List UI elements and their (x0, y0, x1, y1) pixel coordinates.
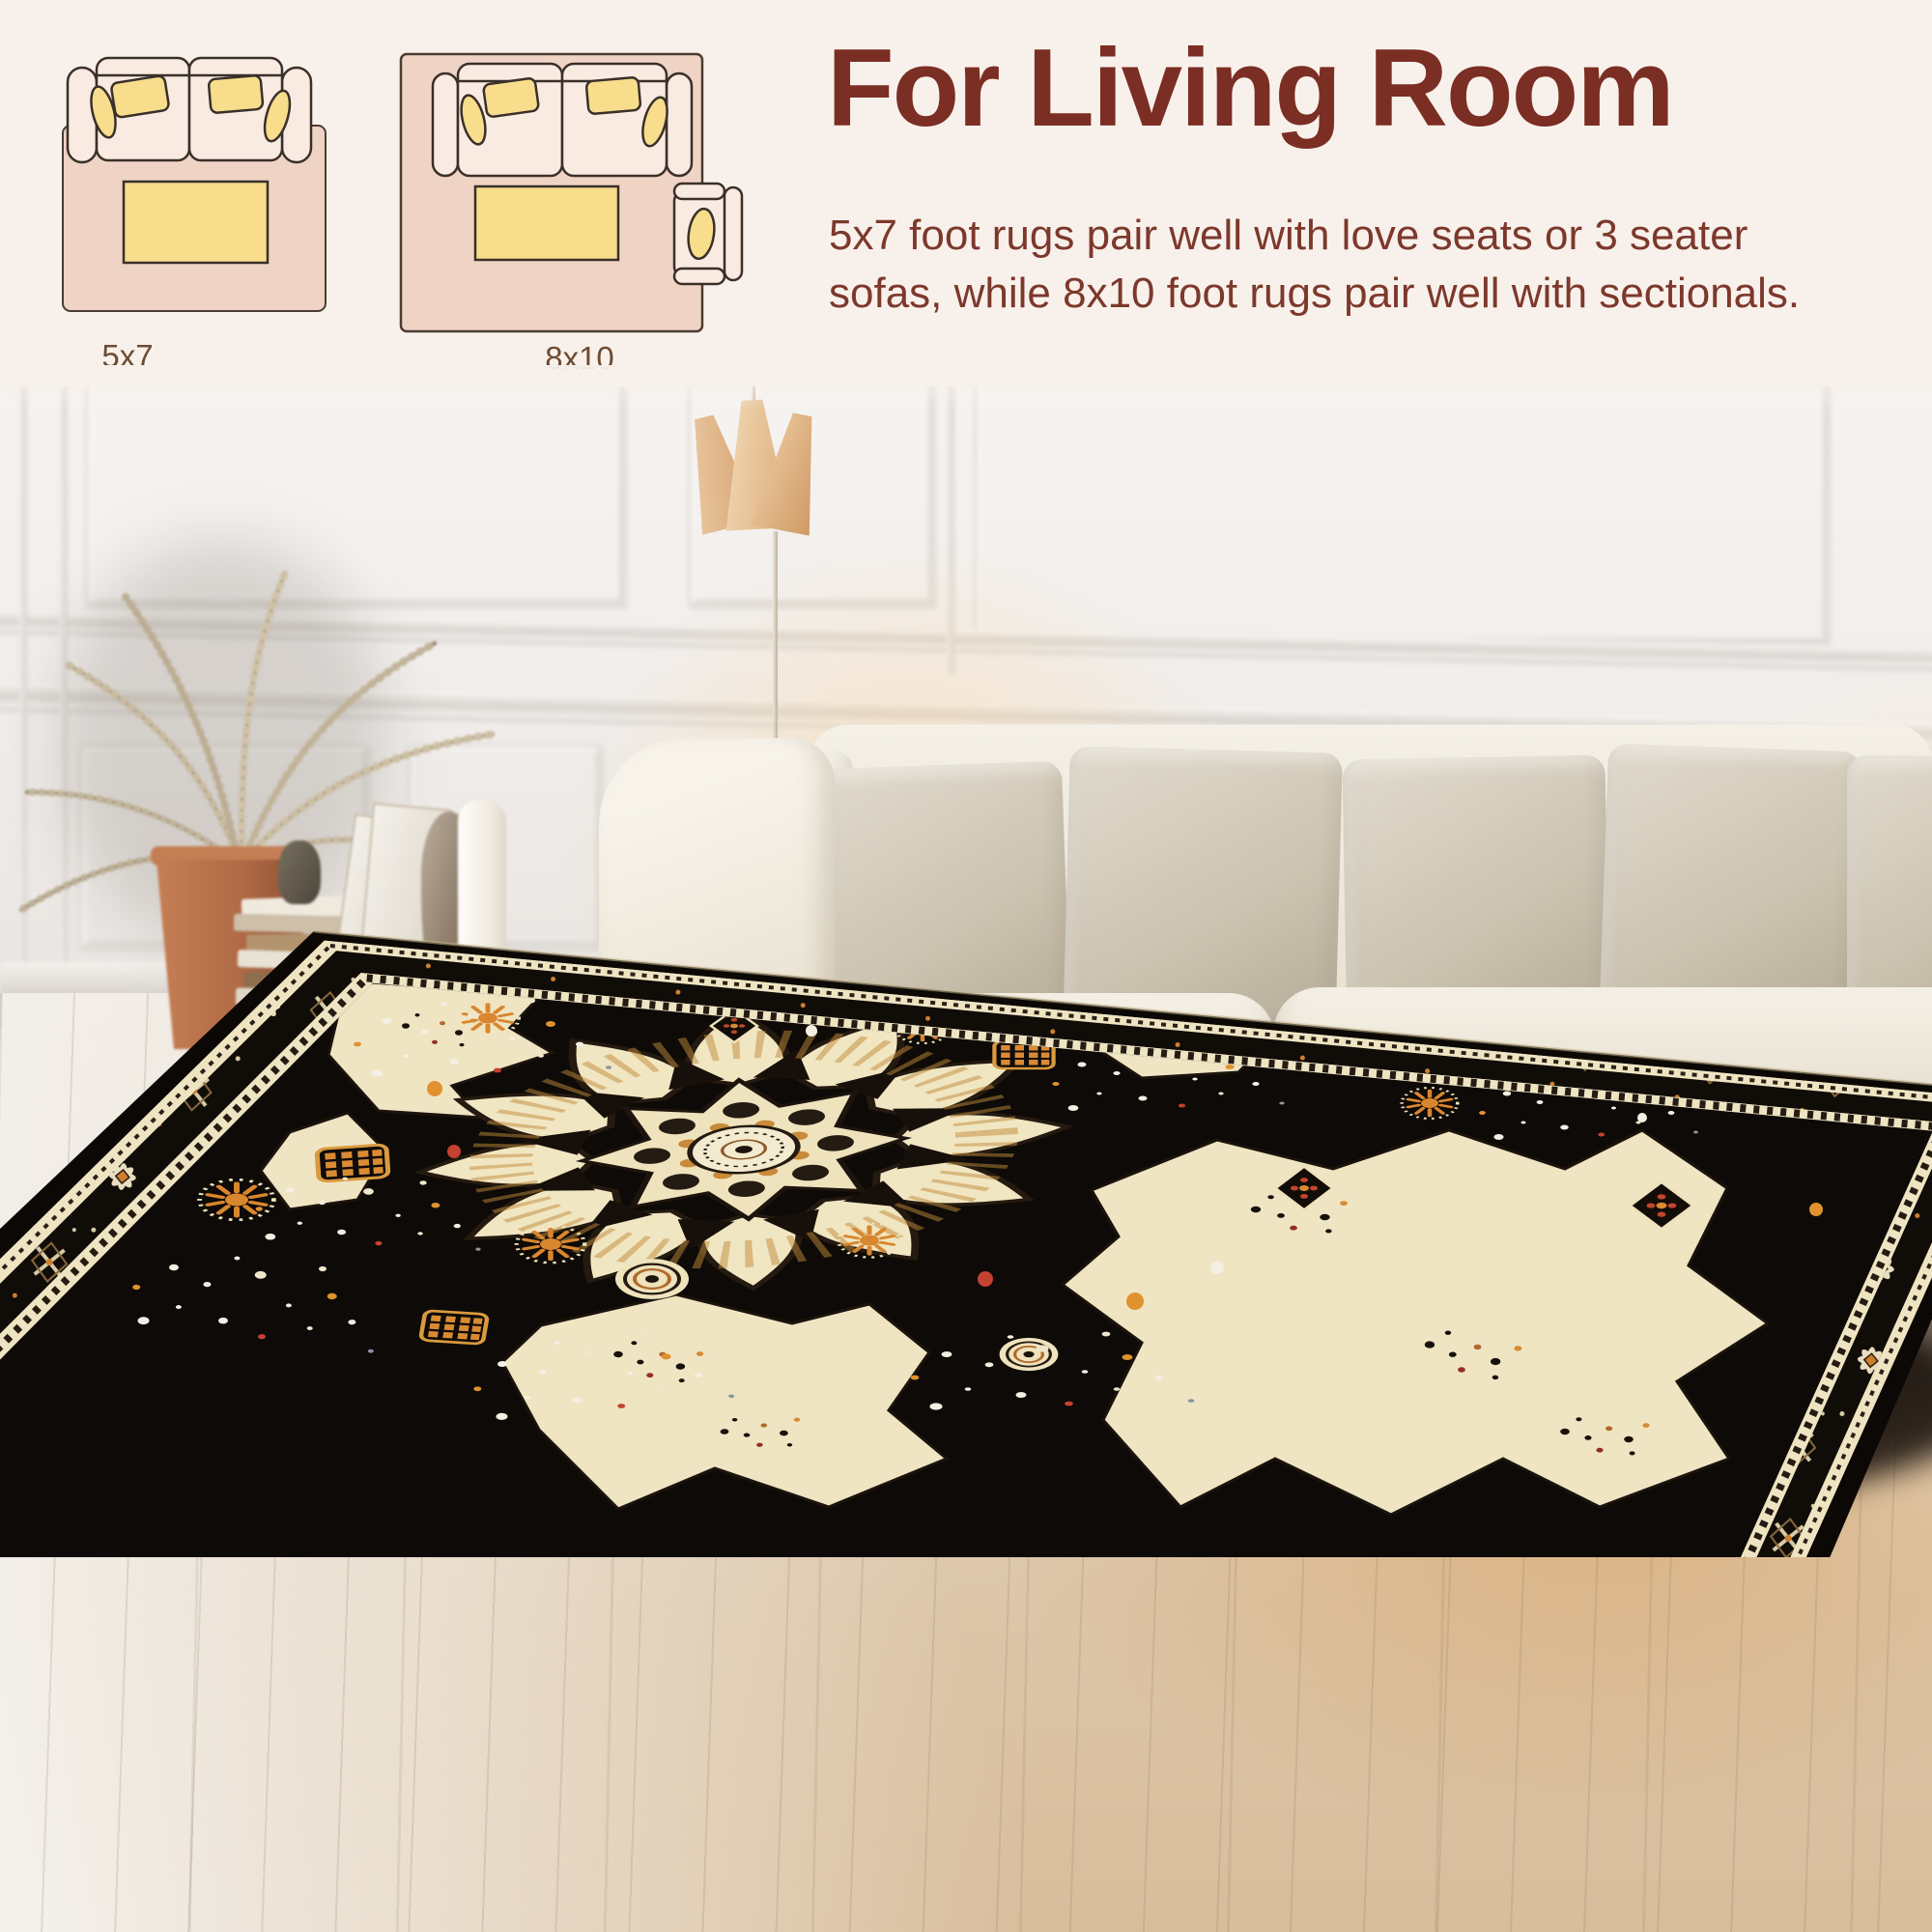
armchair-topview (674, 184, 742, 284)
description-line-2: sofas, while 8x10 foot rugs pair well wi… (829, 265, 1800, 323)
rug-8x10-diagram (396, 46, 763, 336)
header-photo-transition (0, 365, 1932, 410)
header-section: 5x7 8x10 (0, 0, 1932, 386)
sofa-topview (68, 58, 311, 162)
rug-5x7-diagram (53, 39, 343, 328)
coffee-table-shape (475, 186, 618, 260)
oriental-rug (0, 908, 1932, 1557)
description-line-1: 5x7 foot rugs pair well with love seats … (829, 207, 1800, 265)
sofa-topview (433, 64, 692, 176)
page-title: For Living Room (827, 25, 1673, 152)
coffee-table-shape (124, 182, 268, 263)
product-infographic: 5x7 8x10 (0, 0, 1932, 1932)
description-text: 5x7 foot rugs pair well with love seats … (829, 207, 1800, 323)
